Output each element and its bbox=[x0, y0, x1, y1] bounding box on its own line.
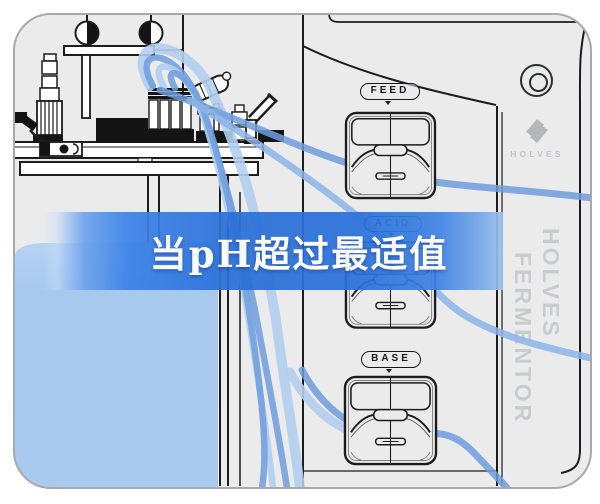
caption-banner: 当pH超过最适值 bbox=[43, 212, 503, 290]
feed-label: FEED bbox=[360, 83, 420, 100]
base-pump-head bbox=[343, 374, 438, 467]
fermentor-illustration: HOLVES FERMENTOR FEED ACID BASE bbox=[0, 0, 600, 504]
feed-pump-head bbox=[343, 111, 438, 200]
holves-logo-icon bbox=[516, 112, 558, 150]
feed-caret-icon bbox=[385, 101, 391, 105]
port-inner-ring bbox=[529, 73, 548, 92]
port-icon bbox=[520, 64, 553, 97]
machine-front-panel: HOLVES FERMENTOR FEED ACID BASE bbox=[0, 0, 600, 504]
holves-logo-text: HOLVES bbox=[503, 149, 571, 159]
base-label: BASE bbox=[361, 351, 421, 368]
base-caret-icon bbox=[386, 369, 392, 373]
caption-text: 当pH超过最适值 bbox=[98, 224, 449, 278]
